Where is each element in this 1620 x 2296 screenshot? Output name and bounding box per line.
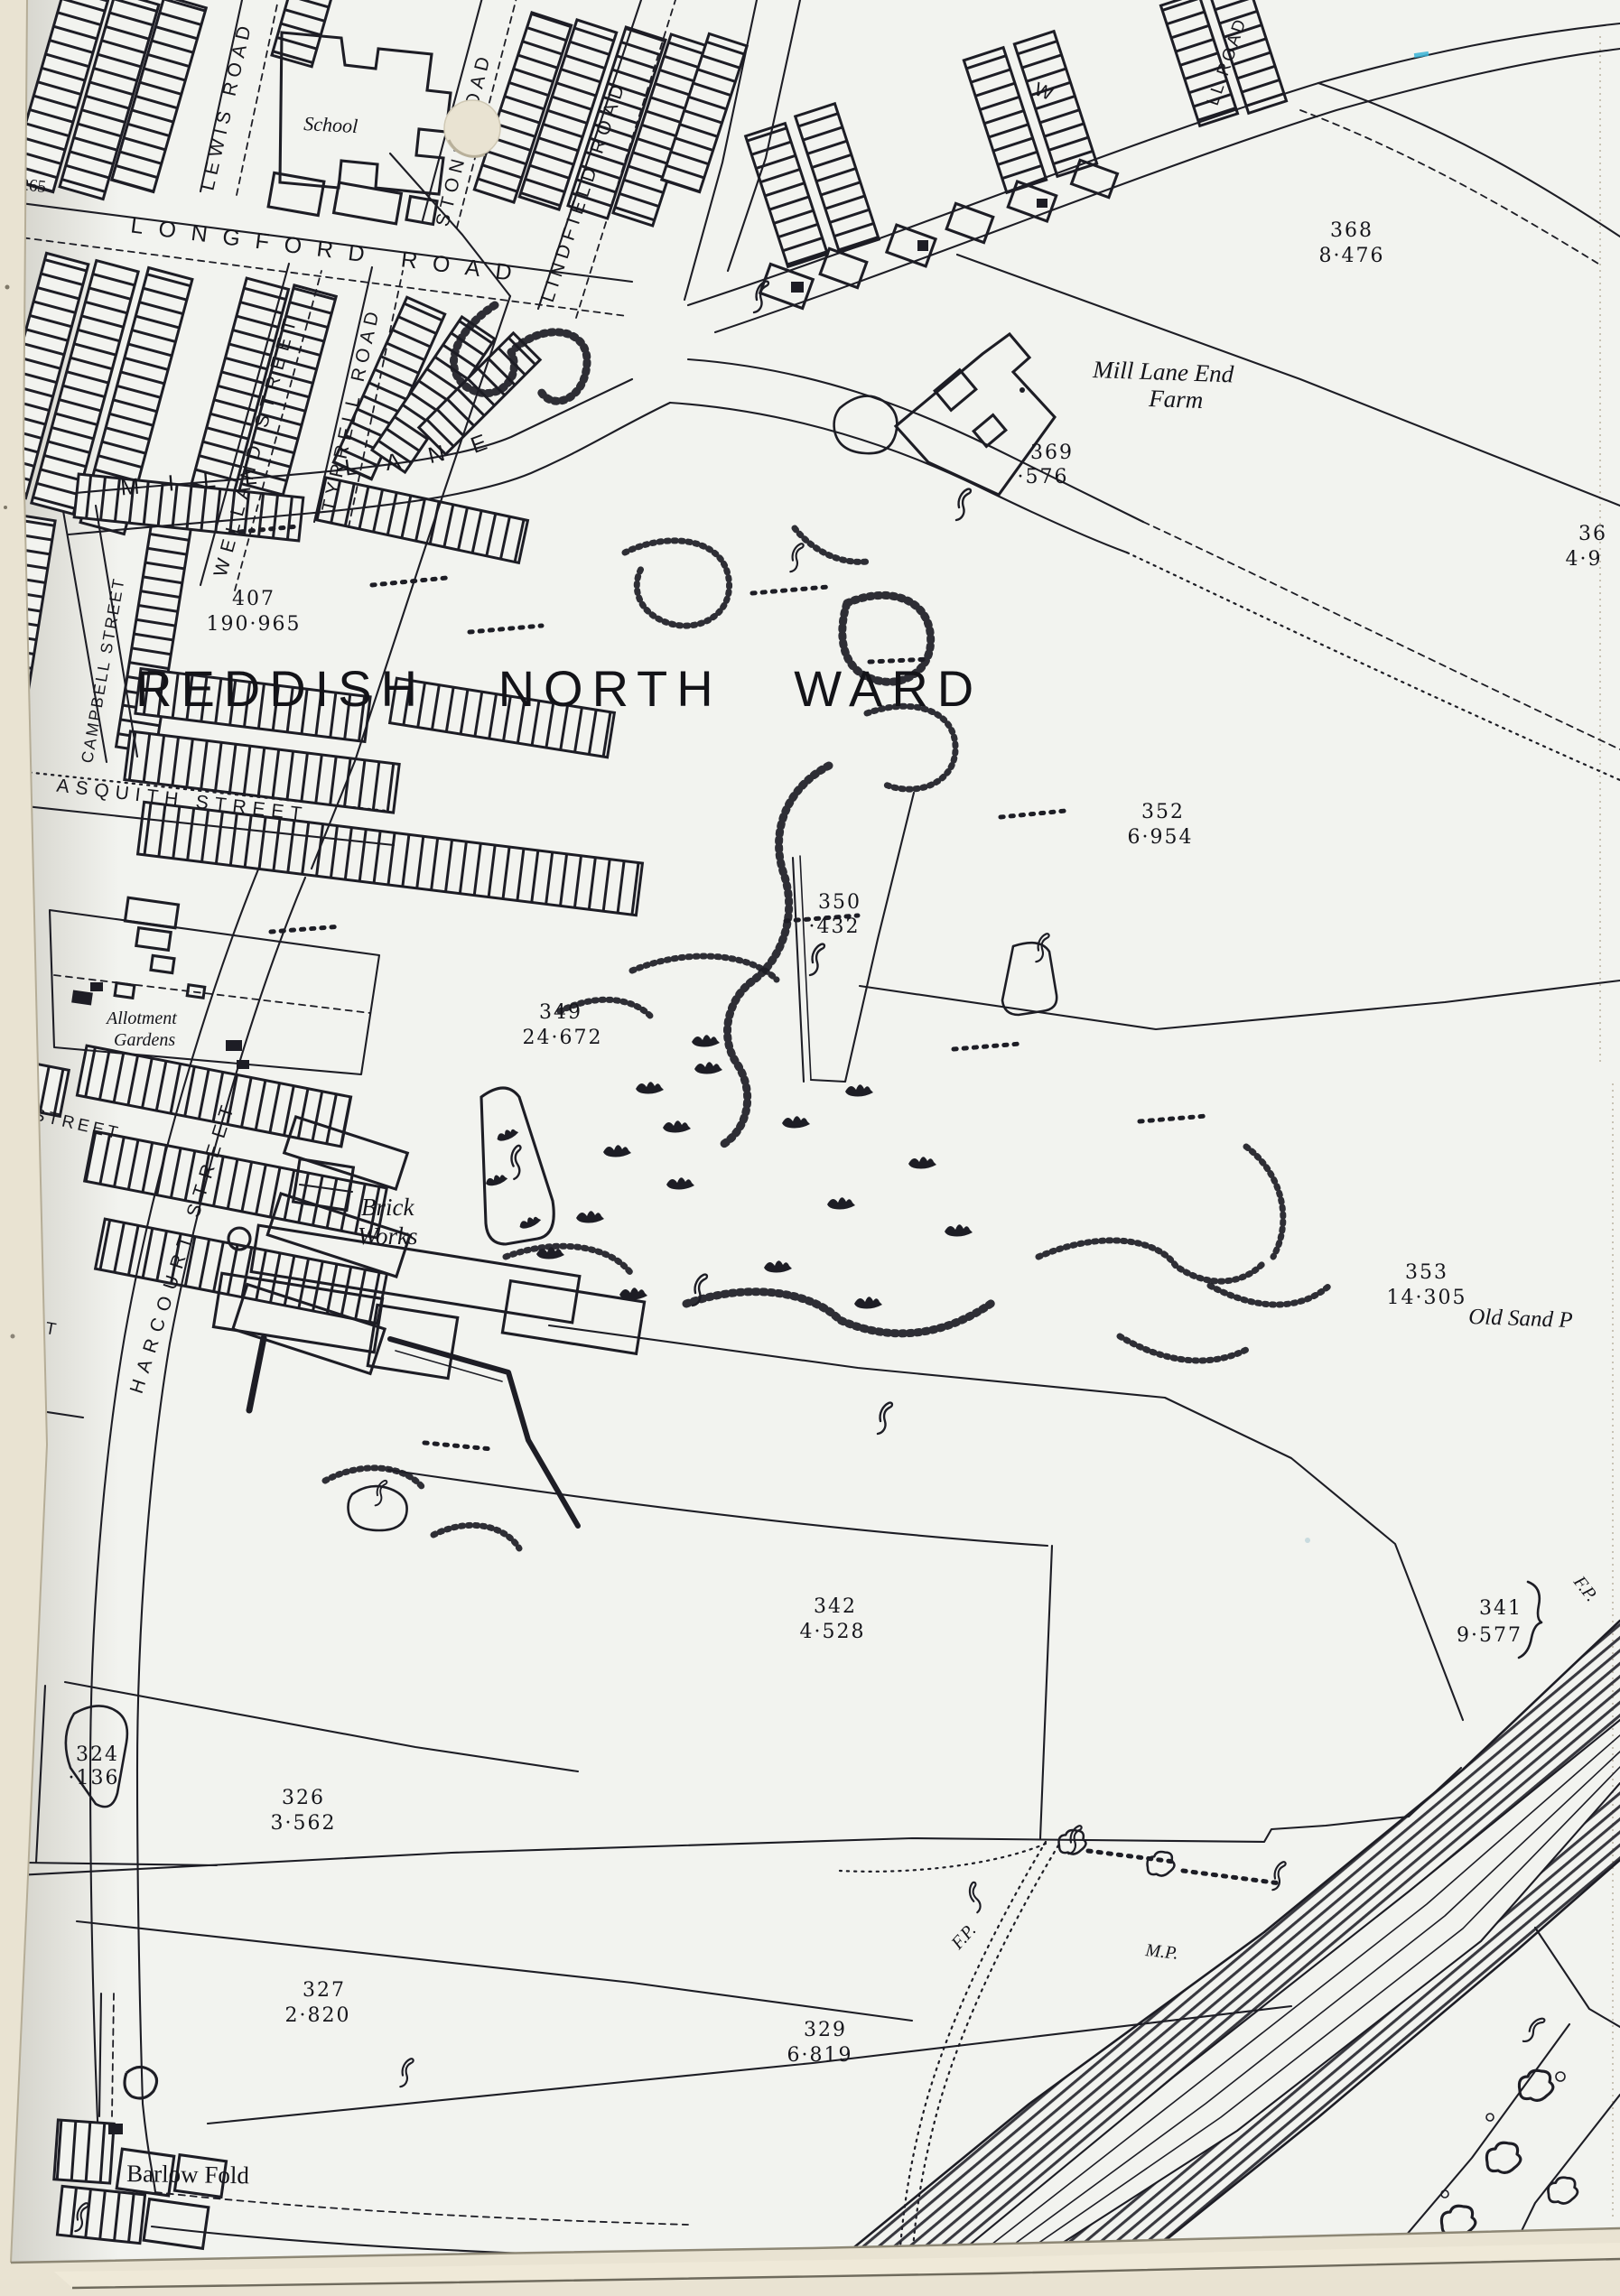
scanned-os-map: REDDISH NORTH WARD LEWIS ROAD STONE ROAD… xyxy=(0,0,1620,2296)
allotment-label-line1: Allotment xyxy=(105,1009,177,1028)
svg-text:350: 350 xyxy=(818,891,861,914)
svg-text:352: 352 xyxy=(1141,801,1185,823)
svg-text:24·672: 24·672 xyxy=(523,1027,603,1049)
svg-text:368: 368 xyxy=(1330,219,1373,242)
milepost-label: M.P. xyxy=(1143,1940,1178,1964)
svg-text:329: 329 xyxy=(804,2019,847,2041)
svg-text:9·577: 9·577 xyxy=(1457,1624,1522,1647)
brick-works-label-line2: Works xyxy=(358,1222,418,1250)
svg-text:327: 327 xyxy=(303,1979,346,2002)
svg-text:324: 324 xyxy=(76,1743,119,1766)
svg-text:342: 342 xyxy=(814,1595,857,1618)
svg-text:190·965: 190·965 xyxy=(207,613,302,636)
svg-text:8·476: 8·476 xyxy=(1319,245,1385,267)
svg-text:3·562: 3·562 xyxy=(271,1812,337,1835)
svg-text:14·305: 14·305 xyxy=(1387,1287,1467,1309)
farm-label-line2: Farm xyxy=(1148,385,1204,414)
svg-text:4·528: 4·528 xyxy=(800,1621,866,1643)
school-label: School xyxy=(303,112,358,137)
svg-text:·432: ·432 xyxy=(809,916,861,938)
svg-text:4·9: 4·9 xyxy=(1566,548,1603,571)
punch-hole xyxy=(444,100,500,156)
svg-text:341: 341 xyxy=(1479,1597,1522,1620)
svg-text:·576: ·576 xyxy=(1018,466,1069,488)
svg-text:369: 369 xyxy=(1030,442,1074,464)
svg-text:6·819: 6·819 xyxy=(787,2044,853,2067)
svg-text:6·954: 6·954 xyxy=(1128,826,1194,849)
ward-title: REDDISH NORTH WARD xyxy=(135,660,982,717)
svg-text:326: 326 xyxy=(282,1787,325,1809)
svg-text:407: 407 xyxy=(232,588,275,610)
svg-text:349: 349 xyxy=(539,1001,582,1024)
barlow-fold-label: Barlow Fold xyxy=(126,2160,250,2189)
svg-text:·136: ·136 xyxy=(69,1767,120,1789)
svg-text:36: 36 xyxy=(1578,523,1607,545)
svg-text:2·820: 2·820 xyxy=(285,2004,351,2027)
map-canvas: REDDISH NORTH WARD LEWIS ROAD STONE ROAD… xyxy=(0,0,1620,2296)
farm-label-line1: Mill Lane End xyxy=(1092,356,1234,387)
allotment-label-line2: Gardens xyxy=(114,1030,175,1050)
parcel-324: 324·136 xyxy=(69,1743,120,1789)
svg-text:353: 353 xyxy=(1405,1261,1448,1284)
old-sand-pit-label: Old Sand P xyxy=(1468,1305,1573,1333)
brick-works-label-line1: Brick xyxy=(361,1194,414,1221)
